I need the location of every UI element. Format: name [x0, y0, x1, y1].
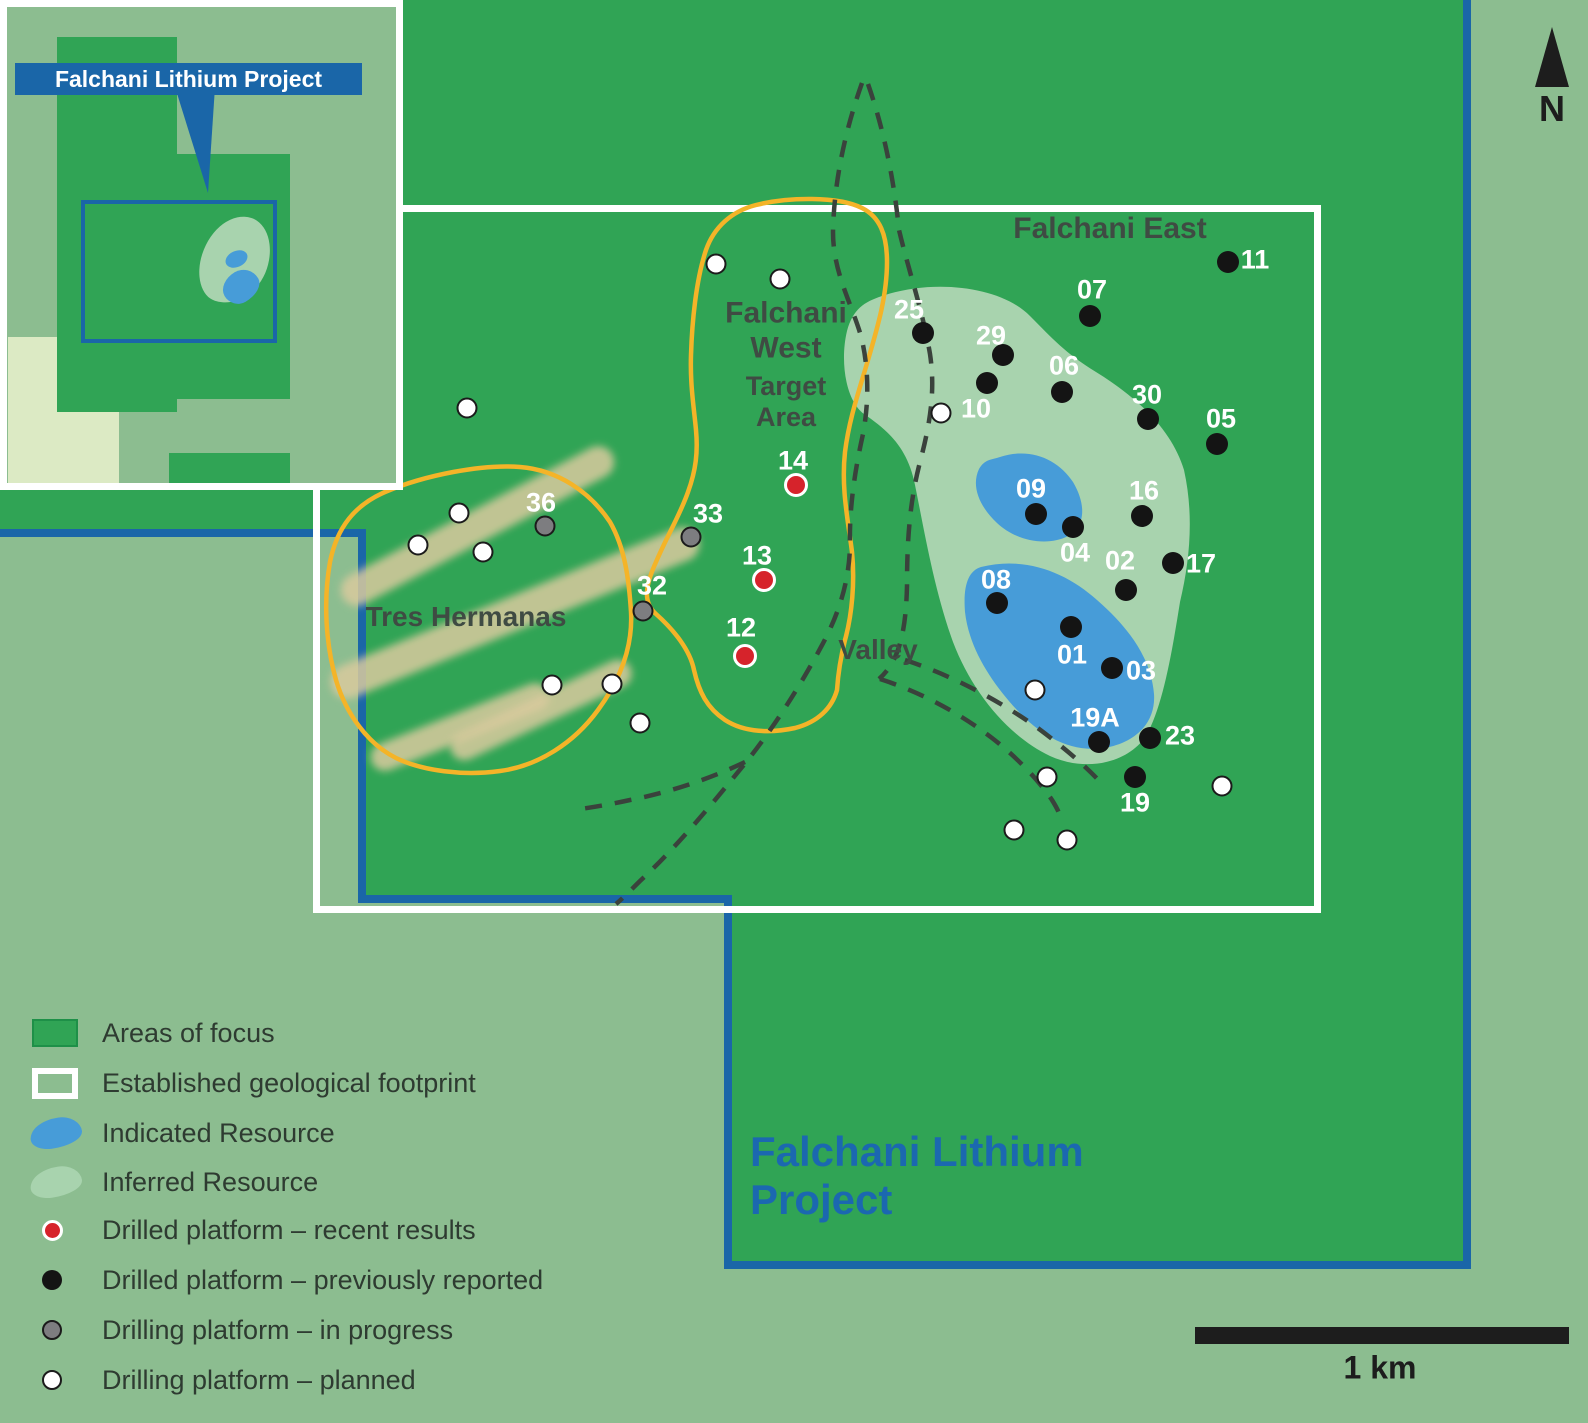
- legend-swatch-recent: [42, 1220, 63, 1241]
- north-arrow-icon: [1535, 27, 1569, 87]
- project-title-line1: Falchani Lithium: [750, 1128, 1084, 1176]
- legend-item-planned: Drilling platform – planned: [30, 1355, 416, 1405]
- project-title-line2: Project: [750, 1176, 1084, 1224]
- legend-swatch-inferred: [28, 1164, 84, 1201]
- legend-item-area: Areas of focus: [30, 1008, 275, 1058]
- region-label-target-area: TargetArea: [746, 371, 827, 433]
- legend-item-recent: Drilled platform – recent results: [30, 1205, 476, 1255]
- region-label-falchani-east: Falchani East: [1013, 212, 1206, 247]
- legend-label: Areas of focus: [102, 1018, 275, 1049]
- legend-item-inferred: Inferred Resource: [30, 1157, 318, 1207]
- legend-label: Drilling platform – in progress: [102, 1315, 453, 1346]
- north-compass: N: [1534, 27, 1570, 127]
- legend-item-previous: Drilled platform – previously reported: [30, 1255, 543, 1305]
- legend-swatch-indicated: [28, 1115, 84, 1152]
- scale-bar: [1195, 1327, 1569, 1344]
- legend-label: Drilling platform – planned: [102, 1365, 416, 1396]
- legend-label: Indicated Resource: [102, 1118, 335, 1149]
- legend-item-footprint: Established geological footprint: [30, 1058, 476, 1108]
- legend-item-indicated: Indicated Resource: [30, 1108, 335, 1158]
- legend-swatch-planned: [42, 1370, 62, 1390]
- legend-item-progress: Drilling platform – in progress: [30, 1305, 453, 1355]
- inset-title: Falchani Lithium Project: [15, 63, 362, 95]
- legend-label: Drilled platform – previously reported: [102, 1265, 543, 1296]
- legend-label: Drilled platform – recent results: [102, 1215, 476, 1246]
- region-label-tres-hermanas: Tres Hermanas: [366, 601, 567, 633]
- legend-swatch-area: [32, 1019, 78, 1047]
- legend-label: Inferred Resource: [102, 1167, 318, 1198]
- scale-bar-label: 1 km: [1344, 1350, 1417, 1387]
- legend-swatch-previous: [42, 1270, 62, 1290]
- inset-locator-map: Falchani Lithium Project: [0, 0, 403, 490]
- legend-swatch-progress: [42, 1320, 62, 1340]
- legend-swatch-footprint: [32, 1068, 78, 1099]
- project-title: Falchani Lithium Project: [750, 1128, 1084, 1224]
- legend-label: Established geological footprint: [102, 1068, 476, 1099]
- north-label: N: [1534, 91, 1570, 127]
- region-label-falchani-west: FalchaniWest: [725, 297, 847, 366]
- region-label-valley: Valley: [838, 634, 917, 666]
- map-canvas: 1413123633322529071106300509041602170801…: [0, 0, 1588, 1423]
